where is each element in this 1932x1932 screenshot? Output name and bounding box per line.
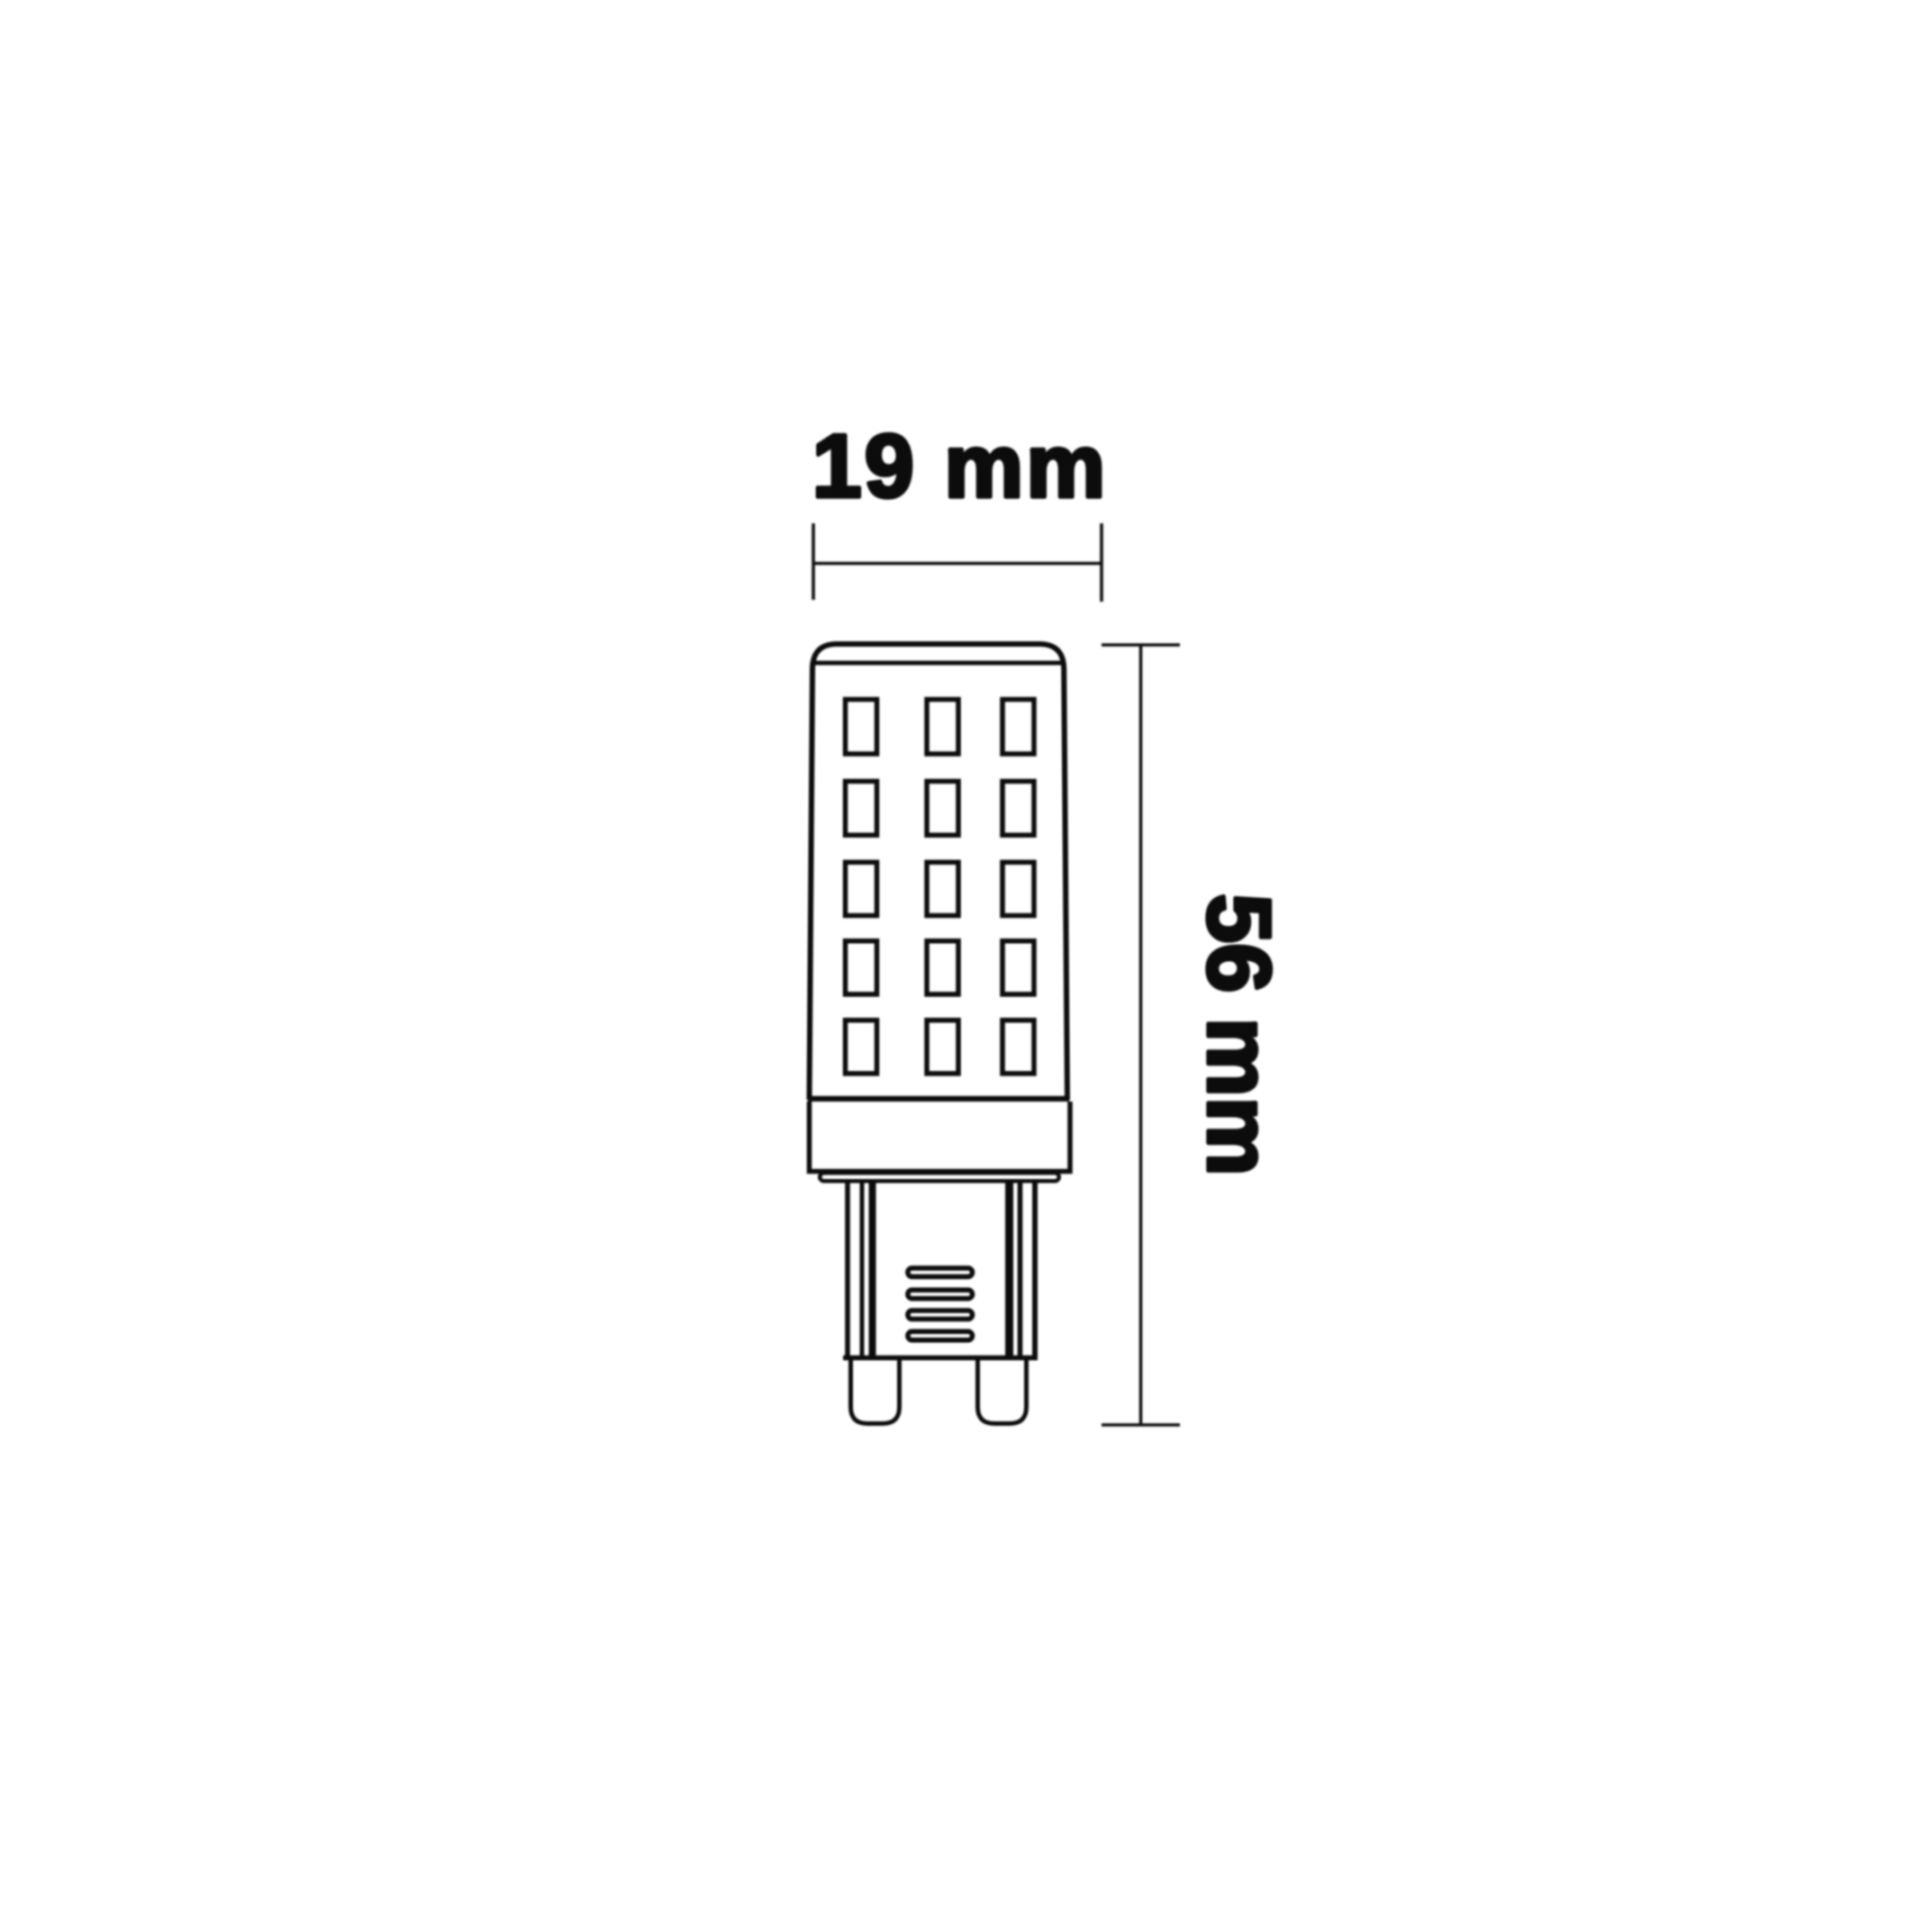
svg-text:56 mm: 56 mm [1190,893,1290,1176]
svg-text:19 mm: 19 mm [812,416,1109,516]
